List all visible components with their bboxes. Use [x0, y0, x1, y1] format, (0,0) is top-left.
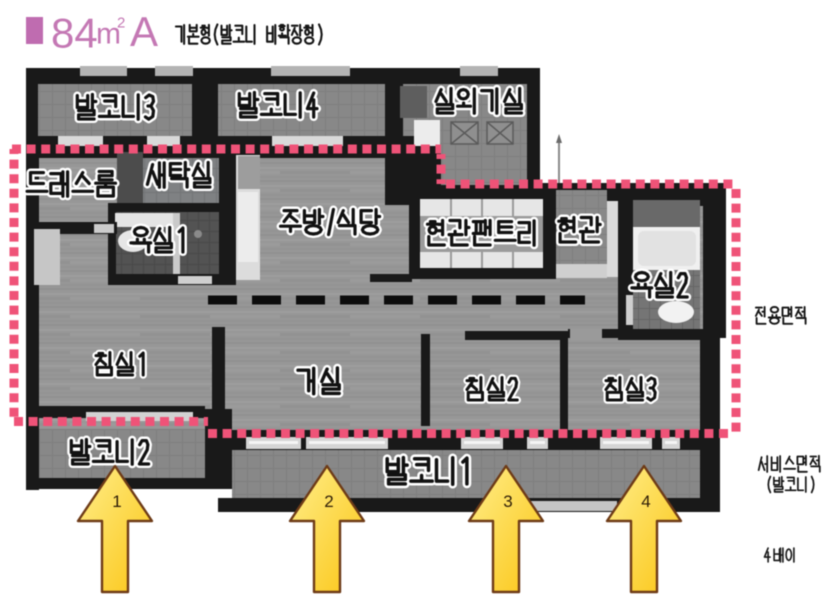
svg-text:2: 2	[324, 492, 333, 511]
svg-text:1: 1	[112, 492, 121, 511]
svg-text:2: 2	[117, 15, 125, 32]
svg-text:4: 4	[641, 492, 650, 511]
svg-text:A: A	[130, 8, 158, 55]
svg-text:84: 84	[51, 10, 98, 57]
svg-text:3: 3	[503, 492, 512, 511]
